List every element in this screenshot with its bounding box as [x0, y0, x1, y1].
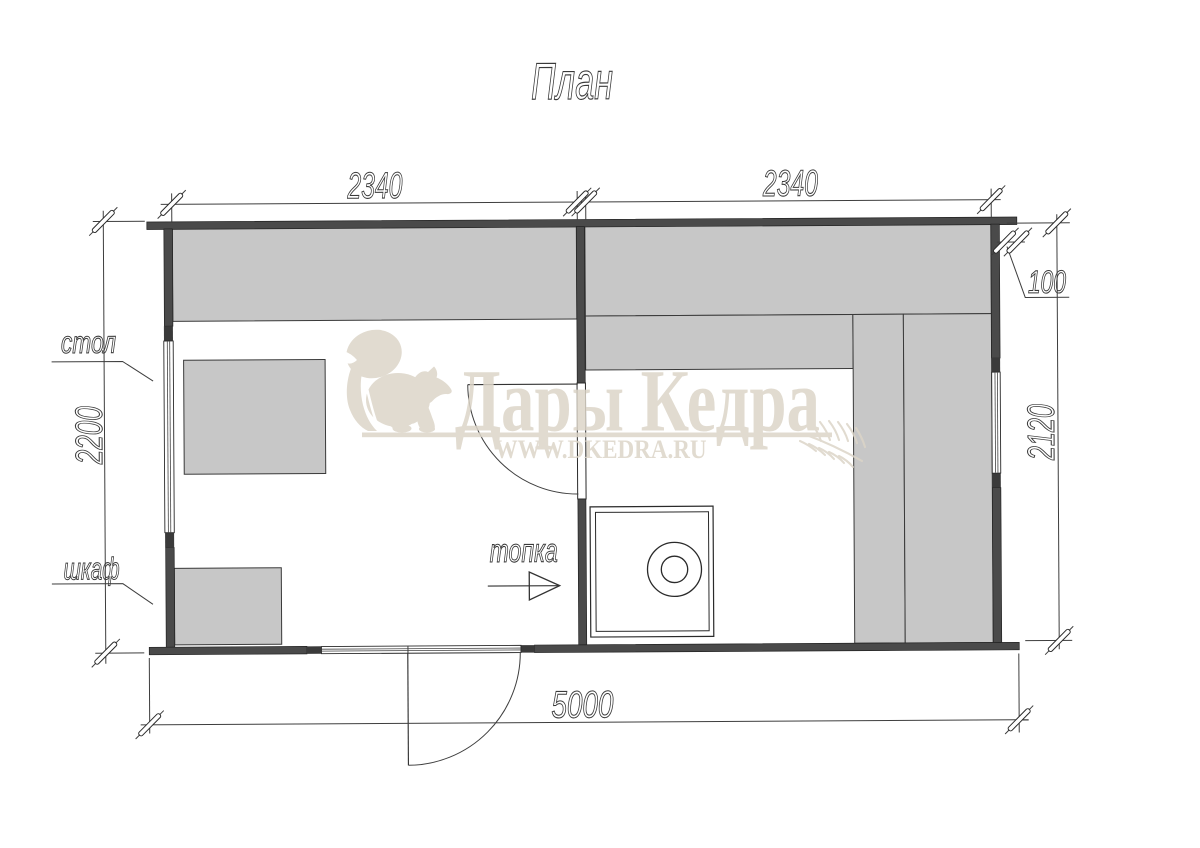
svg-text:2340: 2340 — [347, 165, 403, 206]
svg-text:5000: 5000 — [551, 684, 613, 726]
svg-text:стол: стол — [61, 325, 116, 360]
svg-text:WWW.DKEDRA.RU: WWW.DKEDRA.RU — [495, 435, 707, 464]
svg-text:2200: 2200 — [69, 406, 111, 465]
svg-text:шкаф: шкаф — [63, 551, 119, 586]
svg-text:топка: топка — [490, 532, 558, 569]
svg-text:100: 100 — [1028, 264, 1066, 300]
svg-text:2340: 2340 — [762, 163, 818, 204]
svg-text:2120: 2120 — [1021, 404, 1063, 461]
svg-text:План: План — [531, 53, 613, 111]
